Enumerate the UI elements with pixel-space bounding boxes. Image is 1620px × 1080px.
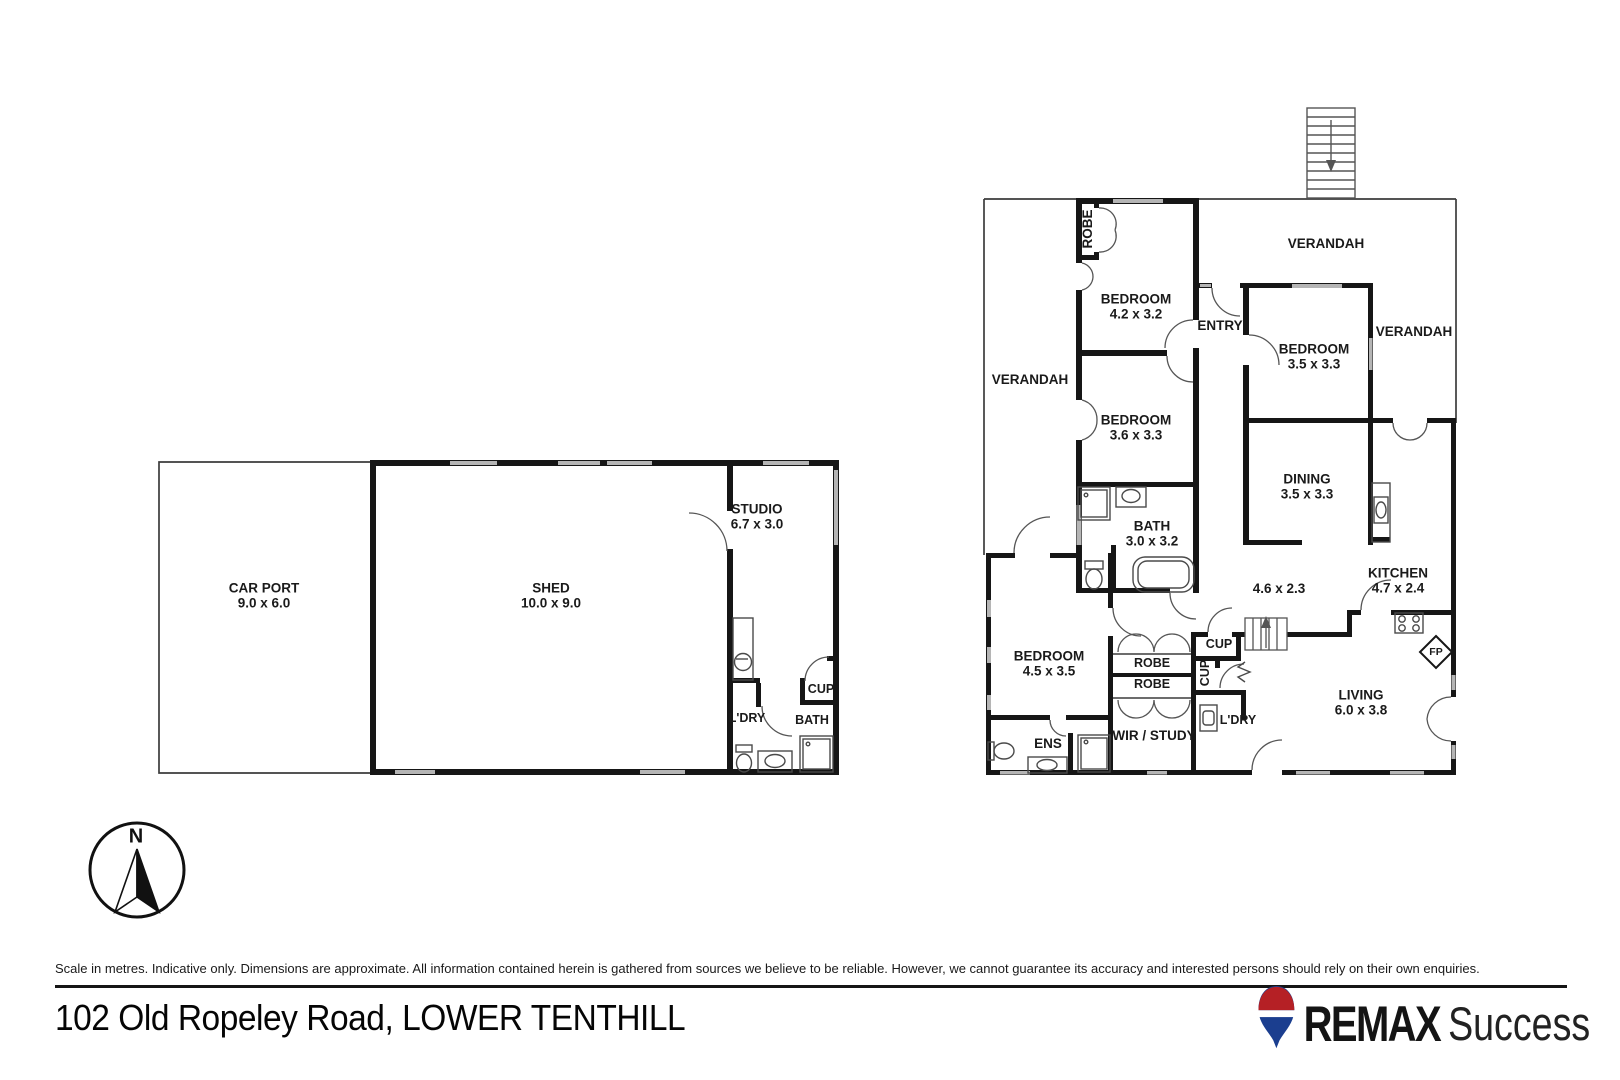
room-label-bedroom3: BEDROOM 3.6 x 3.3 [1101, 414, 1172, 443]
remax-office-name: Success [1448, 992, 1590, 1056]
room-dims: 6.0 x 3.8 [1335, 703, 1388, 718]
hall-stairs [1245, 616, 1287, 650]
room-dims: 3.6 x 3.3 [1101, 428, 1172, 443]
hot-water-icon [1238, 662, 1250, 682]
room-name: KITCHEN [1368, 566, 1428, 581]
room-name: BATH [1134, 519, 1171, 534]
room-label-laundry: L'DRY [1220, 713, 1257, 728]
room-dims: 10.0 x 9.0 [521, 596, 581, 611]
room-label-verandah-left: VERANDAH [992, 373, 1069, 388]
room-label-bedroom1: BEDROOM 4.2 x 3.2 [1101, 293, 1172, 322]
room-label-bedroom2: BEDROOM 3.5 x 3.3 [1279, 343, 1350, 372]
room-name: BEDROOM [1101, 413, 1172, 428]
room-label-entry: ENTRY [1197, 319, 1242, 334]
room-label-ob-cup: CUP [808, 682, 834, 697]
room-dims: 9.0 x 6.0 [229, 596, 300, 611]
room-label-living: LIVING 6.0 x 3.8 [1335, 689, 1388, 718]
floorplan-drawing [0, 0, 1620, 1080]
room-label-dining: DINING 3.5 x 3.3 [1281, 473, 1334, 502]
room-name: SHED [532, 581, 570, 596]
room-label-robe2: ROBE [1134, 677, 1170, 692]
shower-icon [1078, 735, 1110, 772]
toilet-icon [736, 745, 752, 772]
exterior-stairs [1307, 108, 1355, 198]
disclaimer-text: Scale in metres. Indicative only. Dimens… [55, 961, 1480, 976]
laundry-tub-icon [733, 618, 753, 680]
shower-icon [800, 736, 833, 772]
room-label-kitchen: KITCHEN 4.7 x 2.4 [1368, 567, 1428, 596]
room-dims: 4.2 x 3.2 [1101, 307, 1172, 322]
kitchen-bench [1372, 483, 1390, 542]
fireplace-label: FP [1429, 645, 1442, 660]
room-name: STUDIO [731, 502, 782, 517]
room-label-cup2: CUP [1198, 660, 1213, 686]
stove-icon [1395, 613, 1423, 633]
room-dims: 4.7 x 2.4 [1368, 581, 1428, 596]
toilet-icon [1085, 561, 1103, 589]
room-label-ob-laundry: L'DRY [729, 711, 766, 726]
room-label-robe1: ROBE [1134, 656, 1170, 671]
compass-north-label: N [129, 826, 143, 849]
room-label-hall-dims: 4.6 x 2.3 [1253, 582, 1306, 597]
bathtub-icon [1133, 557, 1194, 592]
vanity-icon [758, 751, 792, 772]
room-dims: 4.5 x 3.5 [1014, 664, 1085, 679]
room-name: CAR PORT [229, 581, 300, 596]
remax-balloon-icon [1254, 984, 1299, 1056]
remax-wordmark: REMAX [1304, 992, 1440, 1056]
room-label-cup1: CUP [1206, 637, 1232, 652]
room-label-ens: ENS [1034, 737, 1062, 752]
room-label-verandah-top: VERANDAH [1288, 237, 1365, 252]
room-name: LIVING [1338, 688, 1383, 703]
room-label-ob-bath: BATH [795, 713, 829, 728]
room-name: BEDROOM [1101, 292, 1172, 307]
sink-icon [1116, 487, 1146, 507]
room-dims: 3.5 x 3.3 [1281, 487, 1334, 502]
toilet-icon [988, 742, 1014, 760]
room-label-shed: SHED 10.0 x 9.0 [521, 582, 581, 611]
room-label-studio: STUDIO 6.7 x 3.0 [731, 503, 784, 532]
room-name: BEDROOM [1014, 649, 1085, 664]
room-label-robe-top: ROBE [1081, 209, 1096, 248]
property-address: 102 Old Ropeley Road, LOWER TENTHILL [55, 997, 685, 1039]
room-name: DINING [1283, 472, 1330, 487]
room-name: BEDROOM [1279, 342, 1350, 357]
laundry-tub-icon [1200, 705, 1217, 731]
remax-logo: REMAX Success [1254, 986, 1590, 1056]
room-label-bath: BATH 3.0 x 3.2 [1126, 520, 1179, 549]
shower-icon [1078, 487, 1110, 520]
room-label-carport: CAR PORT 9.0 x 6.0 [229, 582, 300, 611]
room-dims: 3.0 x 3.2 [1126, 534, 1179, 549]
room-label-verandah-right: VERANDAH [1376, 325, 1453, 340]
room-label-bedroom4: BEDROOM 4.5 x 3.5 [1014, 650, 1085, 679]
floorplan-page: CAR PORT 9.0 x 6.0 SHED 10.0 x 9.0 STUDI… [0, 0, 1620, 1080]
room-label-wir-study: WIR / STUDY [1112, 729, 1195, 744]
room-dims: 6.7 x 3.0 [731, 517, 784, 532]
room-dims: 3.5 x 3.3 [1279, 357, 1350, 372]
